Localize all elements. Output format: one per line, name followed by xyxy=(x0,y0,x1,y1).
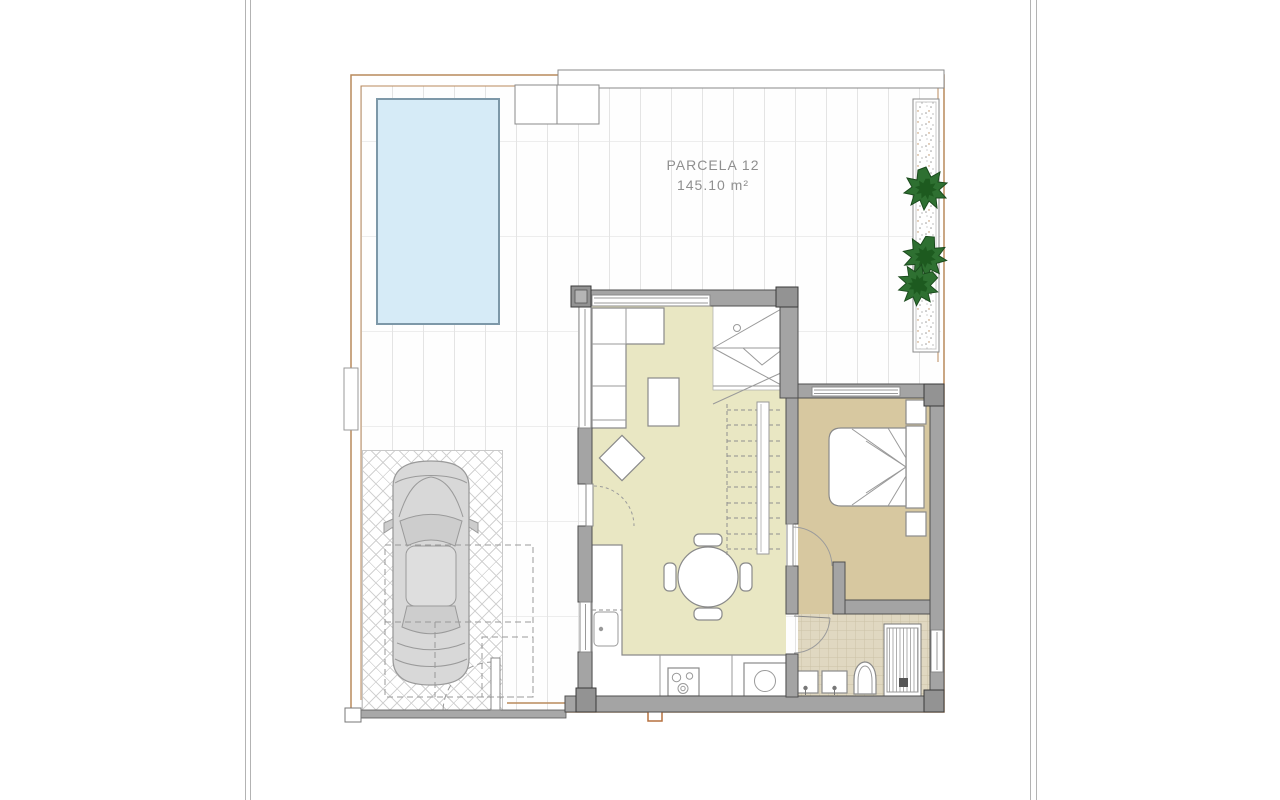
stove xyxy=(668,668,699,696)
coffee-table xyxy=(648,378,679,426)
column xyxy=(924,690,944,712)
chair xyxy=(694,608,722,620)
shower-drain xyxy=(899,678,908,687)
boundary-wall-bottom xyxy=(352,710,566,718)
bedroom-vestibule-floor xyxy=(798,560,833,614)
bathroom-sink xyxy=(822,671,847,695)
bush-icon xyxy=(904,167,947,210)
washing-machine xyxy=(744,663,786,697)
plan-drawing xyxy=(0,0,1280,800)
column xyxy=(576,688,596,712)
sink-drain xyxy=(599,627,603,631)
car-mirror-right xyxy=(469,519,478,533)
floor-plan-canvas: PARCELA 12 145.10 m² xyxy=(0,0,1280,800)
wall-interior xyxy=(786,566,798,614)
neighbour-structures xyxy=(515,70,944,124)
column xyxy=(776,287,798,307)
wall-left xyxy=(578,428,592,484)
stair-railing xyxy=(757,402,769,554)
window-living-top xyxy=(592,295,710,306)
planter-bed xyxy=(913,99,939,352)
parcel-name: PARCELA 12 xyxy=(613,155,813,175)
toilet xyxy=(854,662,876,694)
wall-left xyxy=(578,526,592,602)
wall-bottom xyxy=(565,696,944,712)
window-bedroom xyxy=(812,387,900,396)
wall-closet-stub xyxy=(833,562,845,614)
wall-bed-bath-divider xyxy=(845,600,930,614)
wall-interior xyxy=(786,654,798,697)
parcel-area: 145.10 m² xyxy=(613,175,813,195)
side-gate xyxy=(344,368,358,430)
nightstand xyxy=(906,512,926,536)
chair xyxy=(740,563,752,591)
nightstand xyxy=(906,400,926,424)
bed-headboard xyxy=(906,426,924,508)
plot-label: PARCELA 12 145.10 m² xyxy=(613,155,813,195)
chair xyxy=(664,563,676,591)
shower xyxy=(884,624,921,696)
chair xyxy=(694,534,722,546)
column xyxy=(924,384,944,406)
car xyxy=(384,461,478,685)
boundary-post xyxy=(345,708,361,722)
car-mirror-left xyxy=(384,519,393,533)
wall-interior xyxy=(786,398,798,524)
